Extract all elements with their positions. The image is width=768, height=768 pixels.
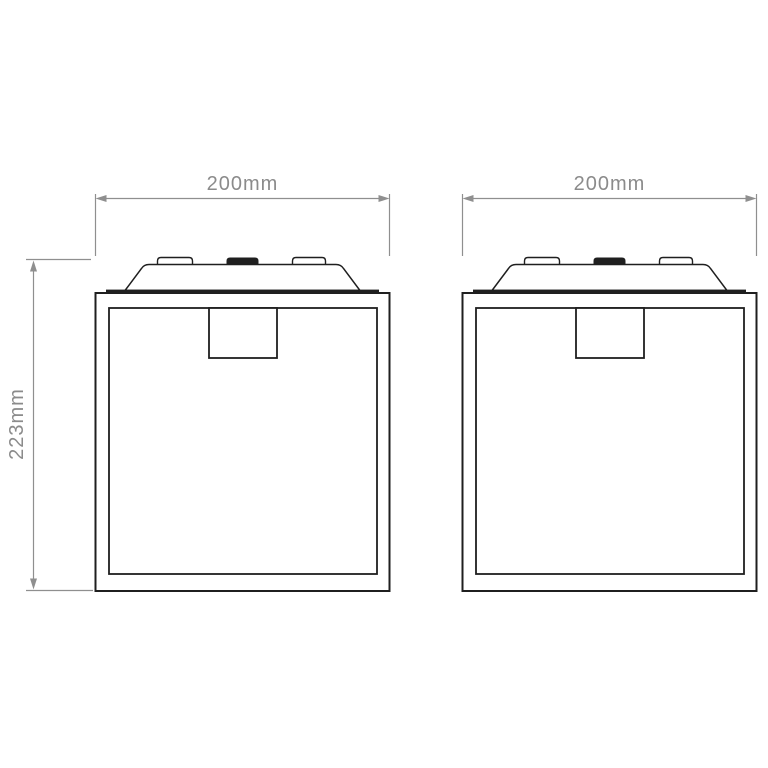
fixture-outline (463, 258, 757, 592)
arrowhead-right-icon (379, 195, 390, 202)
arrowhead-left-icon (463, 195, 474, 202)
height-dimension-label: 223mm (6, 388, 28, 460)
height-dimension: 223mm (6, 260, 93, 591)
dimension-drawing-canvas: 200mm 223mm 200mm (0, 0, 768, 768)
right-fixture-view: 200mm (463, 173, 757, 591)
arrowhead-left-icon (96, 195, 107, 202)
arrowhead-down-icon (30, 579, 37, 590)
width-dimension-label: 200mm (574, 173, 646, 195)
technical-drawing-svg: 200mm 223mm 200mm (0, 0, 768, 768)
right-width-dimension: 200mm (463, 173, 757, 256)
fixture-outline (96, 258, 390, 592)
arrowhead-up-icon (30, 261, 37, 272)
arrowhead-right-icon (746, 195, 757, 202)
left-fixture-view: 200mm 223mm (6, 173, 390, 591)
left-width-dimension: 200mm (96, 173, 390, 256)
width-dimension-label: 200mm (207, 173, 279, 195)
